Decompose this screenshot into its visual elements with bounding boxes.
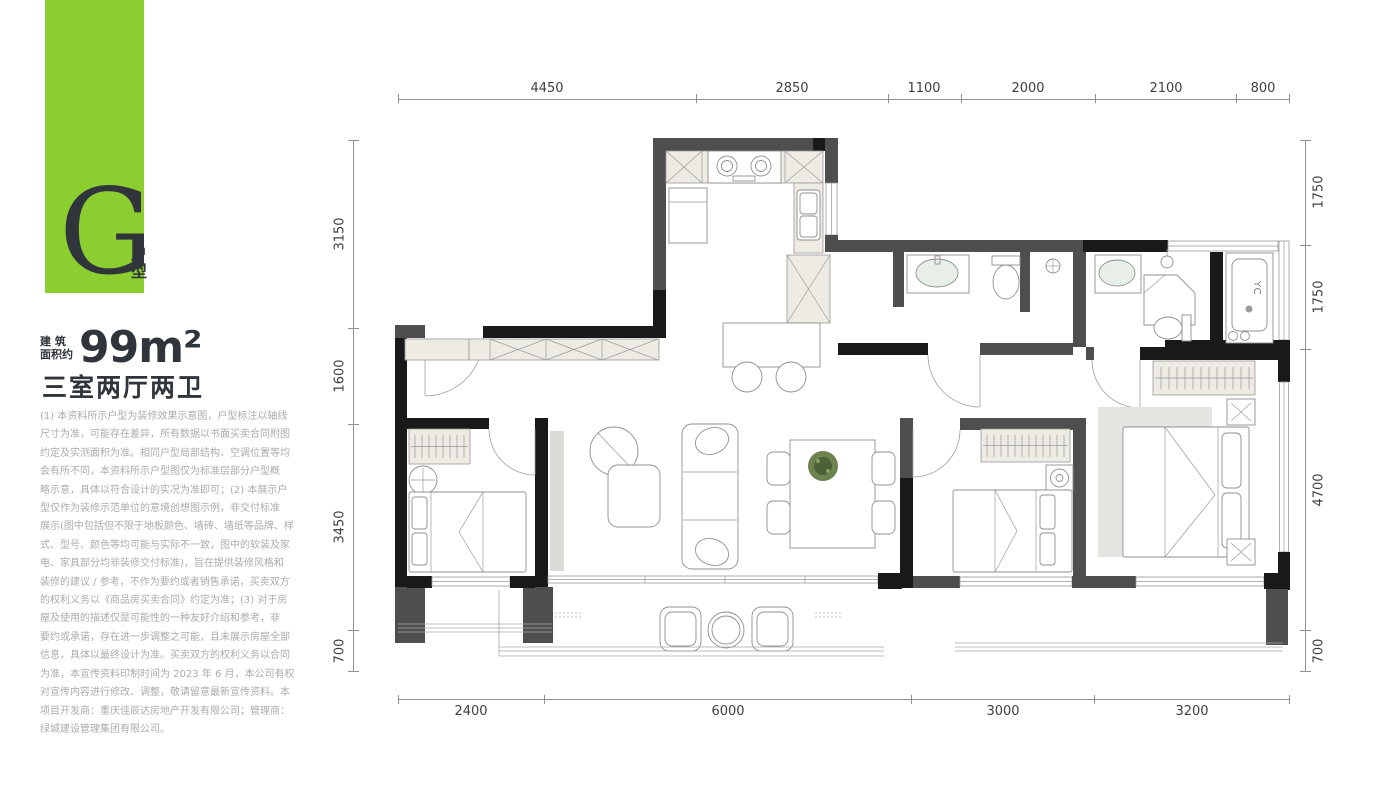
balcony-table xyxy=(708,612,744,648)
dim-label: 1100 xyxy=(907,81,940,96)
bed xyxy=(953,490,1072,572)
stool xyxy=(732,362,762,392)
dim-label: 2000 xyxy=(1011,81,1044,96)
dim-label: 700 xyxy=(333,639,348,664)
dim-label: 800 xyxy=(1251,81,1276,96)
tv-cabinet xyxy=(550,431,564,571)
basin xyxy=(1099,260,1135,286)
dimension-top: 4450 2850 1100 2000 2100 800 xyxy=(398,78,1290,100)
balcony xyxy=(499,590,884,656)
dim-label: 3200 xyxy=(1175,704,1208,719)
basin xyxy=(916,259,958,287)
toilet xyxy=(1154,317,1182,339)
dimension-left: 3150 1600 3450 700 xyxy=(346,140,360,672)
bay-window-right xyxy=(955,643,1283,651)
dining-chair xyxy=(872,452,895,485)
bathroom-2 xyxy=(1095,249,1195,341)
bedroom-1 xyxy=(409,429,526,572)
disclaimer-text: (1) 本资料所示户型为装修效果示意图，户型标注以轴线 尺寸为准，可能存在差异，… xyxy=(40,408,296,739)
dimension-bottom: 2400 6000 3000 3200 xyxy=(398,697,1290,721)
dim-label: 3450 xyxy=(333,510,348,543)
dim-label: 700 xyxy=(1312,639,1327,664)
area-label: 建 筑 面积约 xyxy=(40,335,73,361)
balcony-chair xyxy=(660,607,701,651)
coffee-table xyxy=(608,465,660,527)
master-bedroom xyxy=(1098,361,1255,565)
bedroom1-door xyxy=(489,429,535,475)
dim-label: 2400 xyxy=(454,704,487,719)
dim-label: 4700 xyxy=(1312,473,1327,506)
washer-label: YC xyxy=(1251,280,1262,296)
dining-chair xyxy=(767,501,790,534)
dim-label: 1750 xyxy=(1312,175,1327,208)
fridge xyxy=(669,188,707,243)
balcony-chair xyxy=(752,607,793,651)
dim-label: 6000 xyxy=(711,704,744,719)
dining-chair xyxy=(767,452,790,485)
dim-label: 2850 xyxy=(775,81,808,96)
stove xyxy=(708,151,781,183)
dim-label: 4450 xyxy=(530,81,563,96)
bedroom-2 xyxy=(953,429,1073,572)
layout-title: 三室两厅两卫 xyxy=(42,368,204,404)
kitchen xyxy=(666,151,830,392)
area-value: 99m² xyxy=(79,326,201,370)
shower-room xyxy=(1046,259,1060,273)
toilet xyxy=(993,265,1019,299)
dimension-right: 1750 1750 4700 700 xyxy=(1298,140,1312,672)
living-room xyxy=(550,423,895,571)
entry xyxy=(405,339,659,360)
dim-label: 1750 xyxy=(1312,280,1327,313)
floorplan-page: { "badge": { "letter": "G", "type_label"… xyxy=(0,0,1400,788)
kitchen-island xyxy=(723,323,820,367)
dim-label: 3150 xyxy=(333,217,348,250)
unit-type-label: 户型 xyxy=(129,245,147,281)
entry-cabinet xyxy=(405,339,469,360)
faucet xyxy=(1161,256,1173,268)
bedroom2-door xyxy=(913,430,960,477)
dim-label: 1600 xyxy=(333,359,348,392)
laundry-balcony: YC xyxy=(1226,253,1273,343)
master-door xyxy=(1092,360,1140,408)
dining-chair xyxy=(872,501,895,534)
dim-label: 3000 xyxy=(986,704,1019,719)
bath-door xyxy=(928,355,980,407)
floorplan-drawing: YC xyxy=(395,135,1290,675)
unit-type-badge: G 户型 xyxy=(45,0,144,293)
bathroom-1 xyxy=(907,255,1020,299)
bed xyxy=(1123,427,1249,557)
washer xyxy=(1226,253,1273,343)
stool xyxy=(776,362,806,392)
bed xyxy=(409,492,526,572)
area-info: 建 筑 面积约 99m² xyxy=(40,326,201,370)
dim-label: 2100 xyxy=(1149,81,1182,96)
